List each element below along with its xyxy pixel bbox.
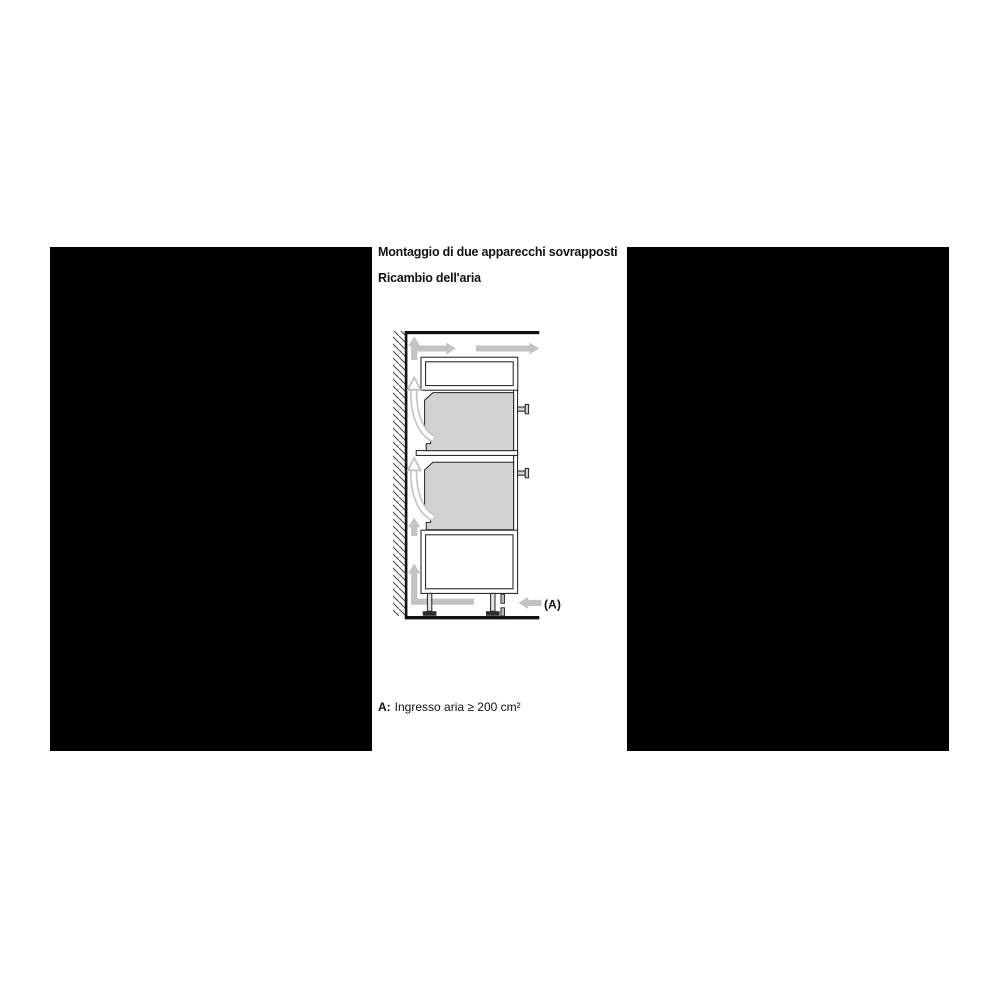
divider-shelf [416,451,517,456]
right-arrow-icon [414,343,456,355]
caption: A:Ingresso aria ≥ 200 cm² [378,700,521,714]
page-title: Montaggio di due apparecchi sovrapposti [378,245,617,259]
top-line [405,331,540,334]
cabinet-foot [486,611,500,616]
lower-oven [425,462,514,530]
lower-oven-knob-cap [525,468,528,477]
upper-oven-knob-cap [525,404,528,413]
caption-key: A: [378,700,391,714]
inlet-label-a: (A) [544,598,561,612]
base-cabinet [421,530,518,593]
wall-hatch [393,331,405,616]
floor-line [405,616,540,619]
cabinet-foot [423,611,437,616]
right-black-mask [627,247,949,751]
inlet-left-arrow-icon [519,597,542,609]
upper-oven-knob [518,407,526,411]
plinth-bracket [501,608,505,616]
caption-value: Ingresso aria ≥ 200 cm² [395,700,521,714]
airflow-diagram: (A) [385,325,570,632]
left-black-mask [50,247,372,751]
manual-page: Montaggio di due apparecchi sovrapposti … [0,0,1000,1000]
right-arrow-icon [476,343,539,355]
up-arrow-icon [408,518,420,537]
top-compartment [421,357,518,390]
cabinet-leg [427,593,431,611]
cabinet-leg [491,593,495,611]
upper-oven [425,393,514,451]
page-subtitle: Ricambio dell'aria [378,271,481,285]
plinth-bracket [501,594,505,603]
wall-line [405,331,408,617]
lower-oven-knob [518,471,526,475]
